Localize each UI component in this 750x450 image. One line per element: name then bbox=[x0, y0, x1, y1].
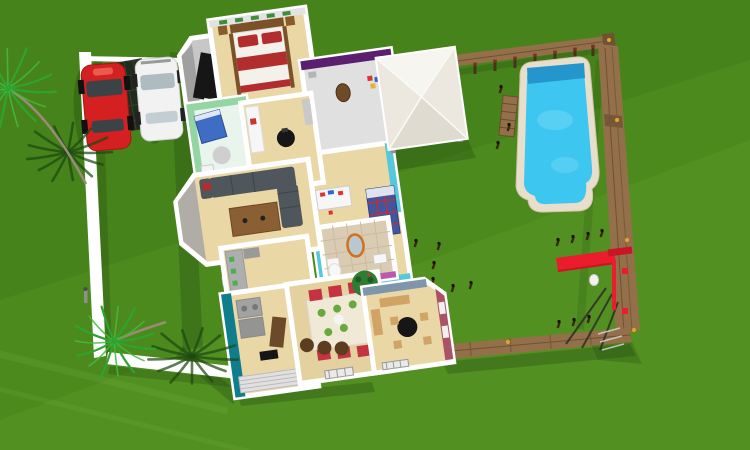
scene-canvas[interactable] bbox=[0, 0, 750, 450]
double-bed[interactable] bbox=[228, 17, 295, 95]
counter-item bbox=[229, 256, 235, 262]
lamp-post[interactable] bbox=[84, 290, 88, 303]
fence-baluster bbox=[591, 45, 595, 56]
fence-knob bbox=[607, 38, 611, 42]
dining-chair[interactable] bbox=[328, 285, 342, 298]
wheel bbox=[78, 80, 85, 94]
sink[interactable] bbox=[373, 253, 387, 264]
counter-item bbox=[231, 268, 237, 274]
water-highlight bbox=[537, 110, 573, 130]
coffee-table[interactable] bbox=[229, 202, 280, 236]
chair[interactable] bbox=[390, 316, 399, 325]
fence-mid-rail bbox=[604, 114, 623, 128]
toy bbox=[367, 76, 373, 82]
counter-item bbox=[232, 280, 238, 286]
fence-knob bbox=[506, 340, 510, 344]
windshield bbox=[140, 73, 175, 91]
fence-knob bbox=[615, 118, 619, 122]
water-highlight bbox=[551, 157, 579, 173]
chair-headrest bbox=[282, 128, 288, 133]
toy bbox=[328, 210, 333, 215]
palm-crown bbox=[5, 85, 11, 91]
room-study[interactable] bbox=[362, 277, 453, 373]
fence-knob bbox=[632, 328, 636, 332]
fence-baluster bbox=[473, 63, 477, 74]
toy bbox=[370, 83, 376, 89]
desk-item bbox=[250, 118, 257, 125]
car-body bbox=[135, 56, 184, 141]
wheel bbox=[127, 116, 134, 130]
desk-item bbox=[328, 190, 334, 195]
dryer[interactable] bbox=[239, 317, 265, 338]
chair[interactable] bbox=[423, 336, 432, 345]
pool-water bbox=[524, 64, 592, 204]
kids-desk[interactable] bbox=[315, 186, 351, 211]
slide-bracket bbox=[622, 308, 628, 314]
fence-knob bbox=[625, 238, 629, 242]
slide-post bbox=[612, 260, 616, 310]
nightstand[interactable] bbox=[285, 16, 295, 26]
slide-bracket bbox=[622, 268, 628, 274]
palm-frond bbox=[7, 48, 8, 88]
lamp-head bbox=[84, 287, 88, 291]
gazebo[interactable] bbox=[376, 47, 469, 154]
palm-frond bbox=[68, 152, 112, 153]
fence-baluster bbox=[513, 57, 517, 68]
small-cabinet bbox=[308, 71, 317, 78]
nightstand[interactable] bbox=[218, 25, 228, 35]
render-viewport[interactable] bbox=[0, 0, 750, 450]
dining-chair[interactable] bbox=[308, 289, 322, 302]
desk-item bbox=[338, 191, 344, 196]
wheel bbox=[123, 76, 130, 90]
swing-seat bbox=[590, 275, 599, 286]
fence-baluster bbox=[493, 60, 497, 71]
palm-crown bbox=[111, 338, 117, 344]
desk-item bbox=[320, 192, 326, 197]
windshield bbox=[86, 78, 123, 97]
washer[interactable] bbox=[236, 297, 262, 318]
chair[interactable] bbox=[420, 312, 429, 321]
chair[interactable] bbox=[393, 340, 402, 349]
throw-pillow bbox=[202, 182, 211, 191]
